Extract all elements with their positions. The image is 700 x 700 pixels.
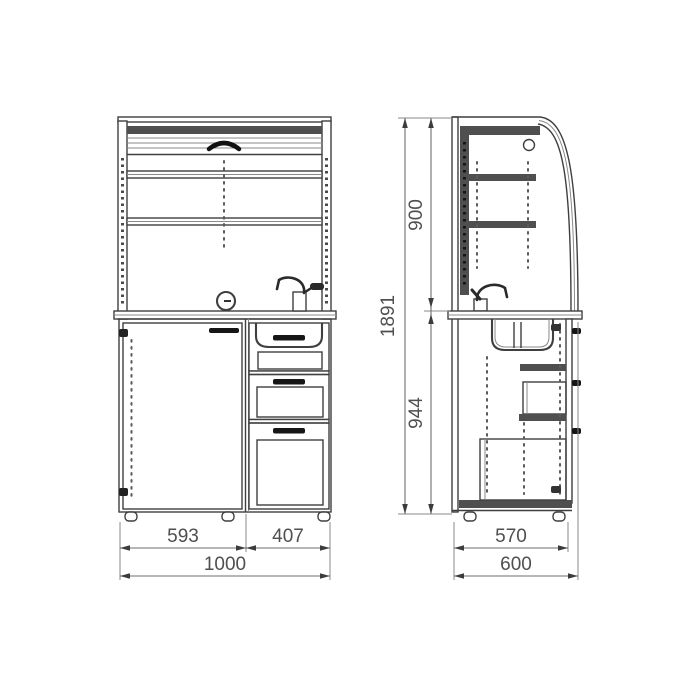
bottom-drawer-inner-panel [257,440,323,505]
foot [222,512,234,521]
door-hinge-bottom [119,488,128,496]
foot [553,512,565,521]
sink-bowl-section [492,319,553,350]
hutch-top-bar [460,126,540,135]
side-depth-label: 570 [495,526,527,547]
front-left-width-label: 593 [167,526,199,547]
dim-arrow [428,118,434,128]
dim-arrow [236,545,246,551]
dim-arrow [454,573,464,579]
base-bar [459,500,572,508]
dim-arrow [454,545,464,551]
side-view [448,117,582,521]
side-shelf-1 [468,174,536,181]
dim-arrow [428,298,434,308]
shutter-pivot [524,140,535,151]
drawer-rail-2 [519,414,566,421]
side-handle-3 [572,428,581,434]
lower-height-label: 944 [406,397,427,429]
foot [318,512,330,521]
bottom-drawer [249,423,329,509]
faucet-body [293,292,306,311]
dim-arrow [568,573,578,579]
dim-arrow [402,118,408,128]
fitting-bottom [551,486,561,493]
dim-arrow [120,545,130,551]
foot [464,512,476,521]
foot [125,512,137,521]
sink-bowl-inner [495,319,549,347]
side-handle-2 [572,380,581,386]
faucet-lever [310,283,324,290]
shutter-slat-band [127,126,322,134]
faucet-spout [477,285,507,300]
faucet-spout [277,278,304,293]
faucet-side [472,285,507,311]
sink-drawer-handle [273,335,305,341]
side-shelf-2 [468,221,536,228]
sink-drawer [249,323,329,371]
shutter-track-inner-curve [538,124,571,311]
total-height-label: 1891 [378,295,399,337]
bottom-drawer-handle [273,428,305,434]
cabinet-door [119,323,242,509]
door-panel [123,323,242,509]
dim-arrow [120,573,130,579]
door-hinge-top [119,329,128,337]
door-handle [209,328,239,333]
front-total-width-label: 1000 [204,554,246,575]
shutter-track-outer-curve [452,117,578,311]
drawing-svg: 593 407 1000 570 600 900 944 1891 [0,0,700,700]
dim-arrow [402,504,408,514]
middle-drawer [249,375,329,420]
middle-drawer-inner-panel [257,387,323,417]
dim-arrow [246,545,256,551]
hutch-top-cap [118,117,331,122]
fitting-top [551,324,561,331]
dim-arrow [320,573,330,579]
side-handle-1 [572,328,581,334]
bottom-drawer-front [249,423,329,509]
sink-drawer-inner-panel [258,352,322,369]
front-right-width-label: 407 [272,526,304,547]
faucet-body [474,299,487,311]
middle-drawer-handle [273,379,305,385]
drawer-front-section [566,319,572,503]
technical-drawing: 593 407 1000 570 600 900 944 1891 [0,0,700,700]
dim-arrow [428,314,434,324]
dim-arrow [428,504,434,514]
faucet-front [277,278,324,311]
side-total-depth-label: 600 [500,554,532,575]
shutter-roll-strip [460,135,469,295]
dim-arrow [558,545,568,551]
front-view [114,117,336,521]
upper-height-label: 900 [406,199,427,231]
dim-arrow [320,545,330,551]
